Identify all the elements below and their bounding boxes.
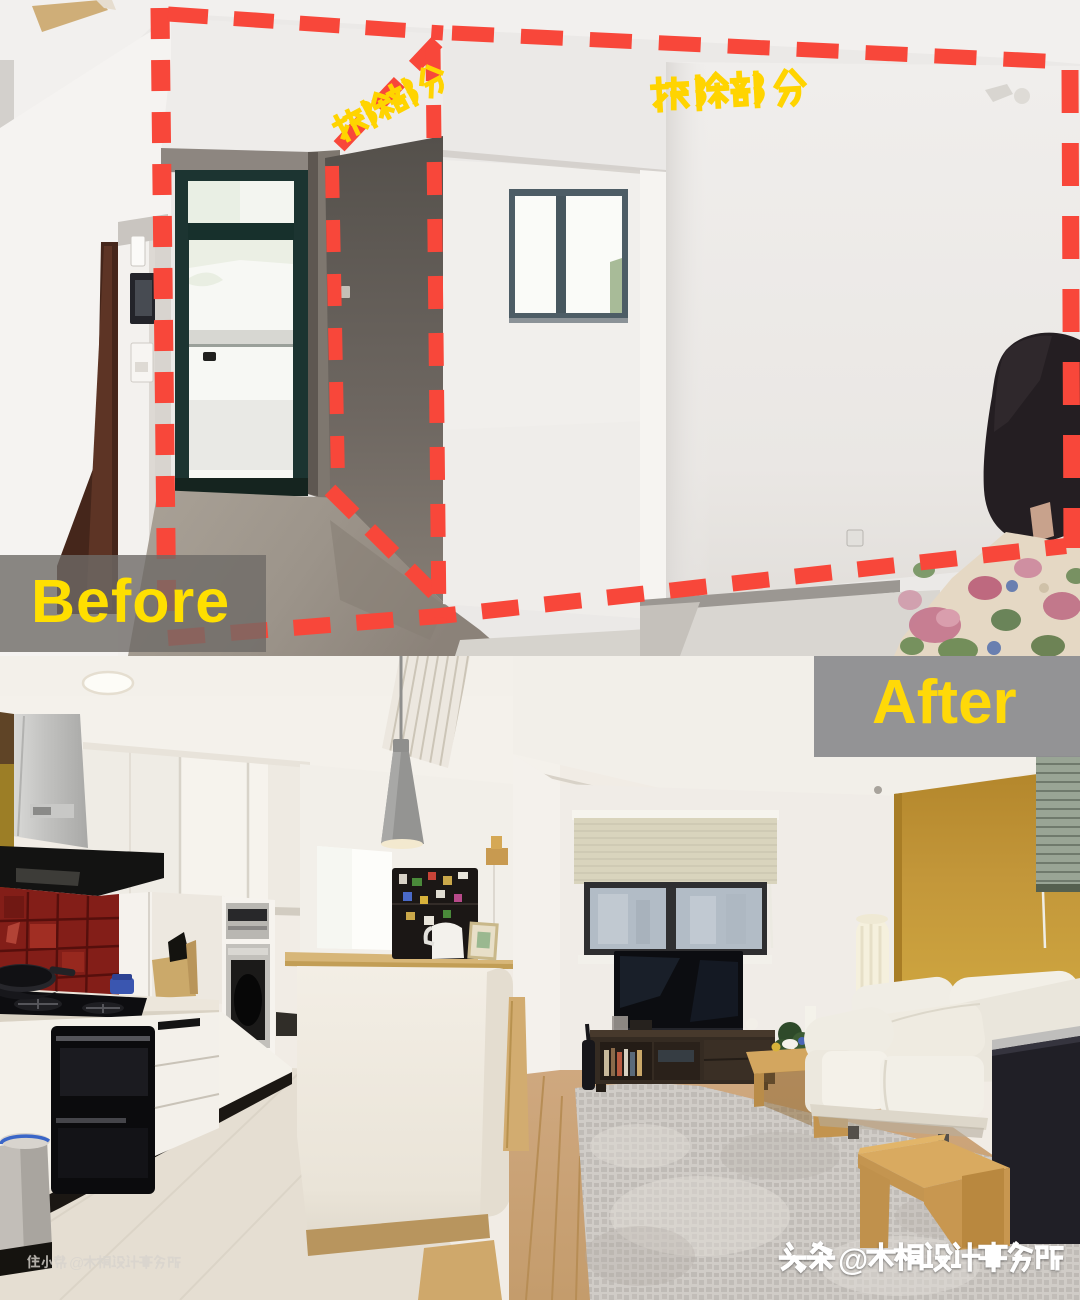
svg-text:@: @ xyxy=(838,1242,868,1277)
svg-text:@: @ xyxy=(69,1255,84,1272)
svg-text:Before: Before xyxy=(31,567,230,635)
svg-text:After: After xyxy=(872,668,1017,737)
